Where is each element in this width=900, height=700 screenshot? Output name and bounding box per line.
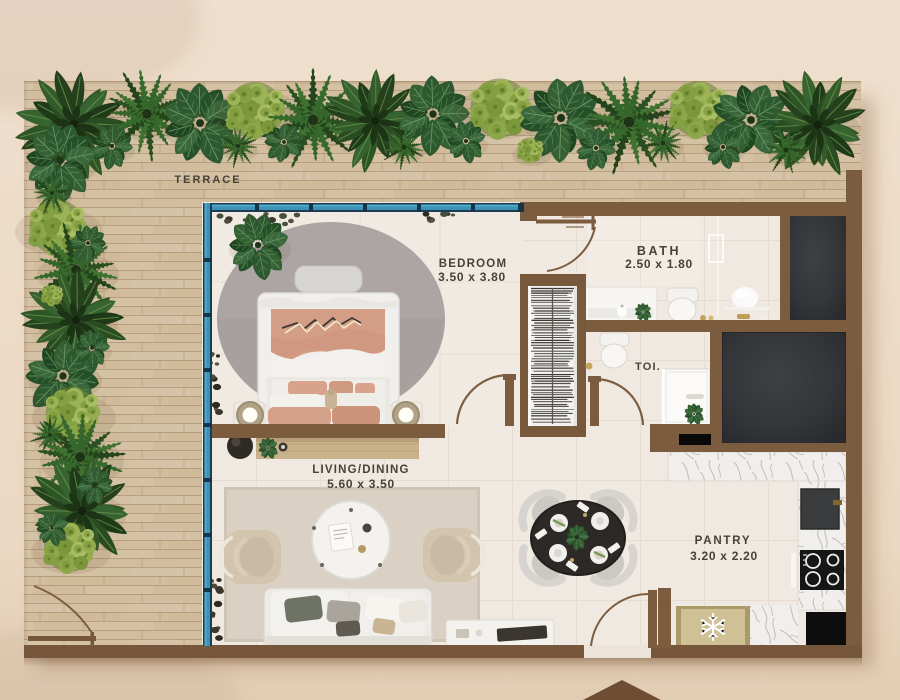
svg-text:TERRACE: TERRACE — [174, 174, 241, 186]
svg-text:TOI.: TOI. — [635, 361, 661, 373]
svg-text:PANTRY: PANTRY — [695, 535, 752, 547]
svg-text:5.60 x 3.50: 5.60 x 3.50 — [327, 477, 395, 491]
svg-text:LIVING/DINING: LIVING/DINING — [312, 464, 409, 476]
svg-text:3.20 x 2.20: 3.20 x 2.20 — [690, 549, 758, 563]
svg-text:2.50 x 1.80: 2.50 x 1.80 — [625, 257, 693, 271]
svg-text:BATH: BATH — [637, 244, 681, 258]
svg-text:3.50 x 3.80: 3.50 x 3.80 — [438, 270, 506, 284]
svg-text:BEDROOM: BEDROOM — [439, 258, 507, 270]
